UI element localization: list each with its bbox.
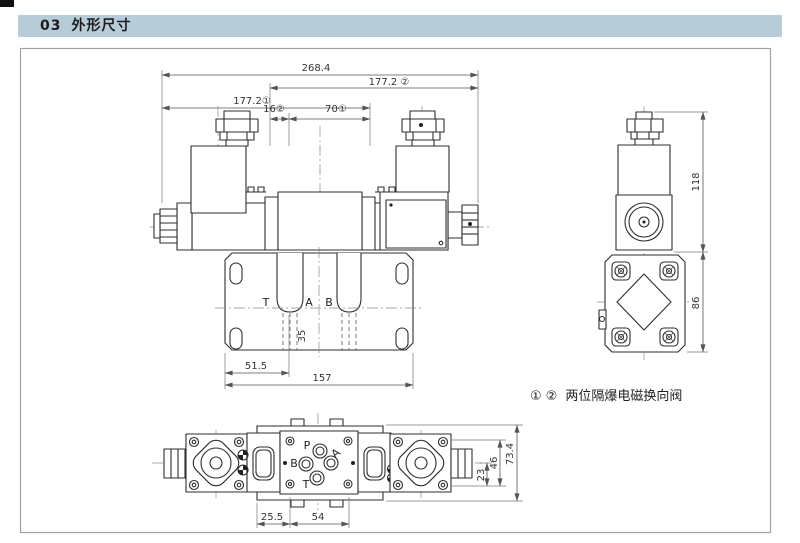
dim-width-right: 177.2 ② (369, 77, 410, 88)
dim-73-4: 73.4 (505, 443, 516, 465)
dim-118: 118 (691, 172, 702, 191)
dim-86: 86 (691, 297, 702, 310)
dim-70: 70① (325, 104, 347, 115)
dim-25-5: 25.5 (261, 512, 283, 523)
port-label-t-bottom: T (302, 478, 310, 491)
port-label-b: B (325, 296, 333, 309)
caption-mark-1: ① (530, 389, 542, 404)
dim-35: 35 (297, 330, 308, 343)
dim-23: 23 (476, 469, 487, 482)
dim-overall-width: 268.4 (302, 63, 331, 74)
figure-caption: ①②两位隔爆电磁换向阀 (530, 388, 682, 404)
port-label-b-bottom: B (290, 457, 298, 470)
dimension-drawing: 268.4 177.2 ② 177.2① 16② 70① (0, 0, 800, 543)
caption-label: 两位隔爆电磁换向阀 (565, 388, 682, 404)
page-corner-mark (0, 0, 14, 7)
port-label-p: P (304, 439, 311, 452)
dim-16: 16② (263, 104, 285, 115)
dim-51-5: 51.5 (245, 361, 267, 372)
dim-54: 54 (312, 512, 325, 523)
port-label-a: A (305, 296, 313, 309)
left-solenoid (191, 146, 246, 213)
connector-dot (468, 222, 472, 226)
dim-157: 157 (312, 373, 331, 384)
port-label-t: T (262, 296, 270, 309)
caption-mark-2: ② (546, 389, 558, 404)
dim-46: 46 (489, 457, 500, 470)
nameplate (386, 200, 446, 248)
